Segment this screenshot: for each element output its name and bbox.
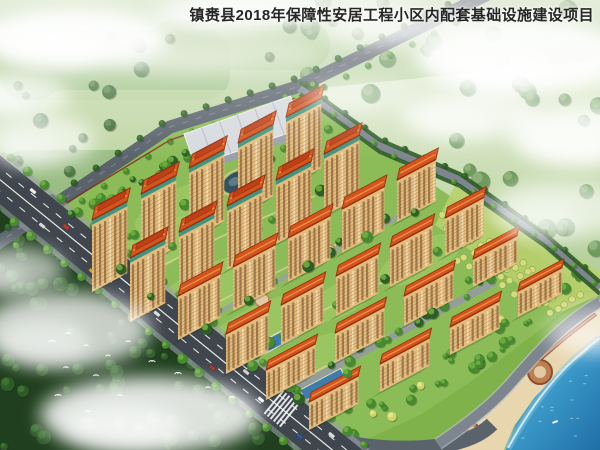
project-title: 镇赉县2018年保障性安居工程小区内配套基础设施建设项目 xyxy=(0,4,594,25)
aerial-rendering xyxy=(0,0,600,450)
rendering-canvas: 镇赉县2018年保障性安居工程小区内配套基础设施建设项目 xyxy=(0,0,600,450)
